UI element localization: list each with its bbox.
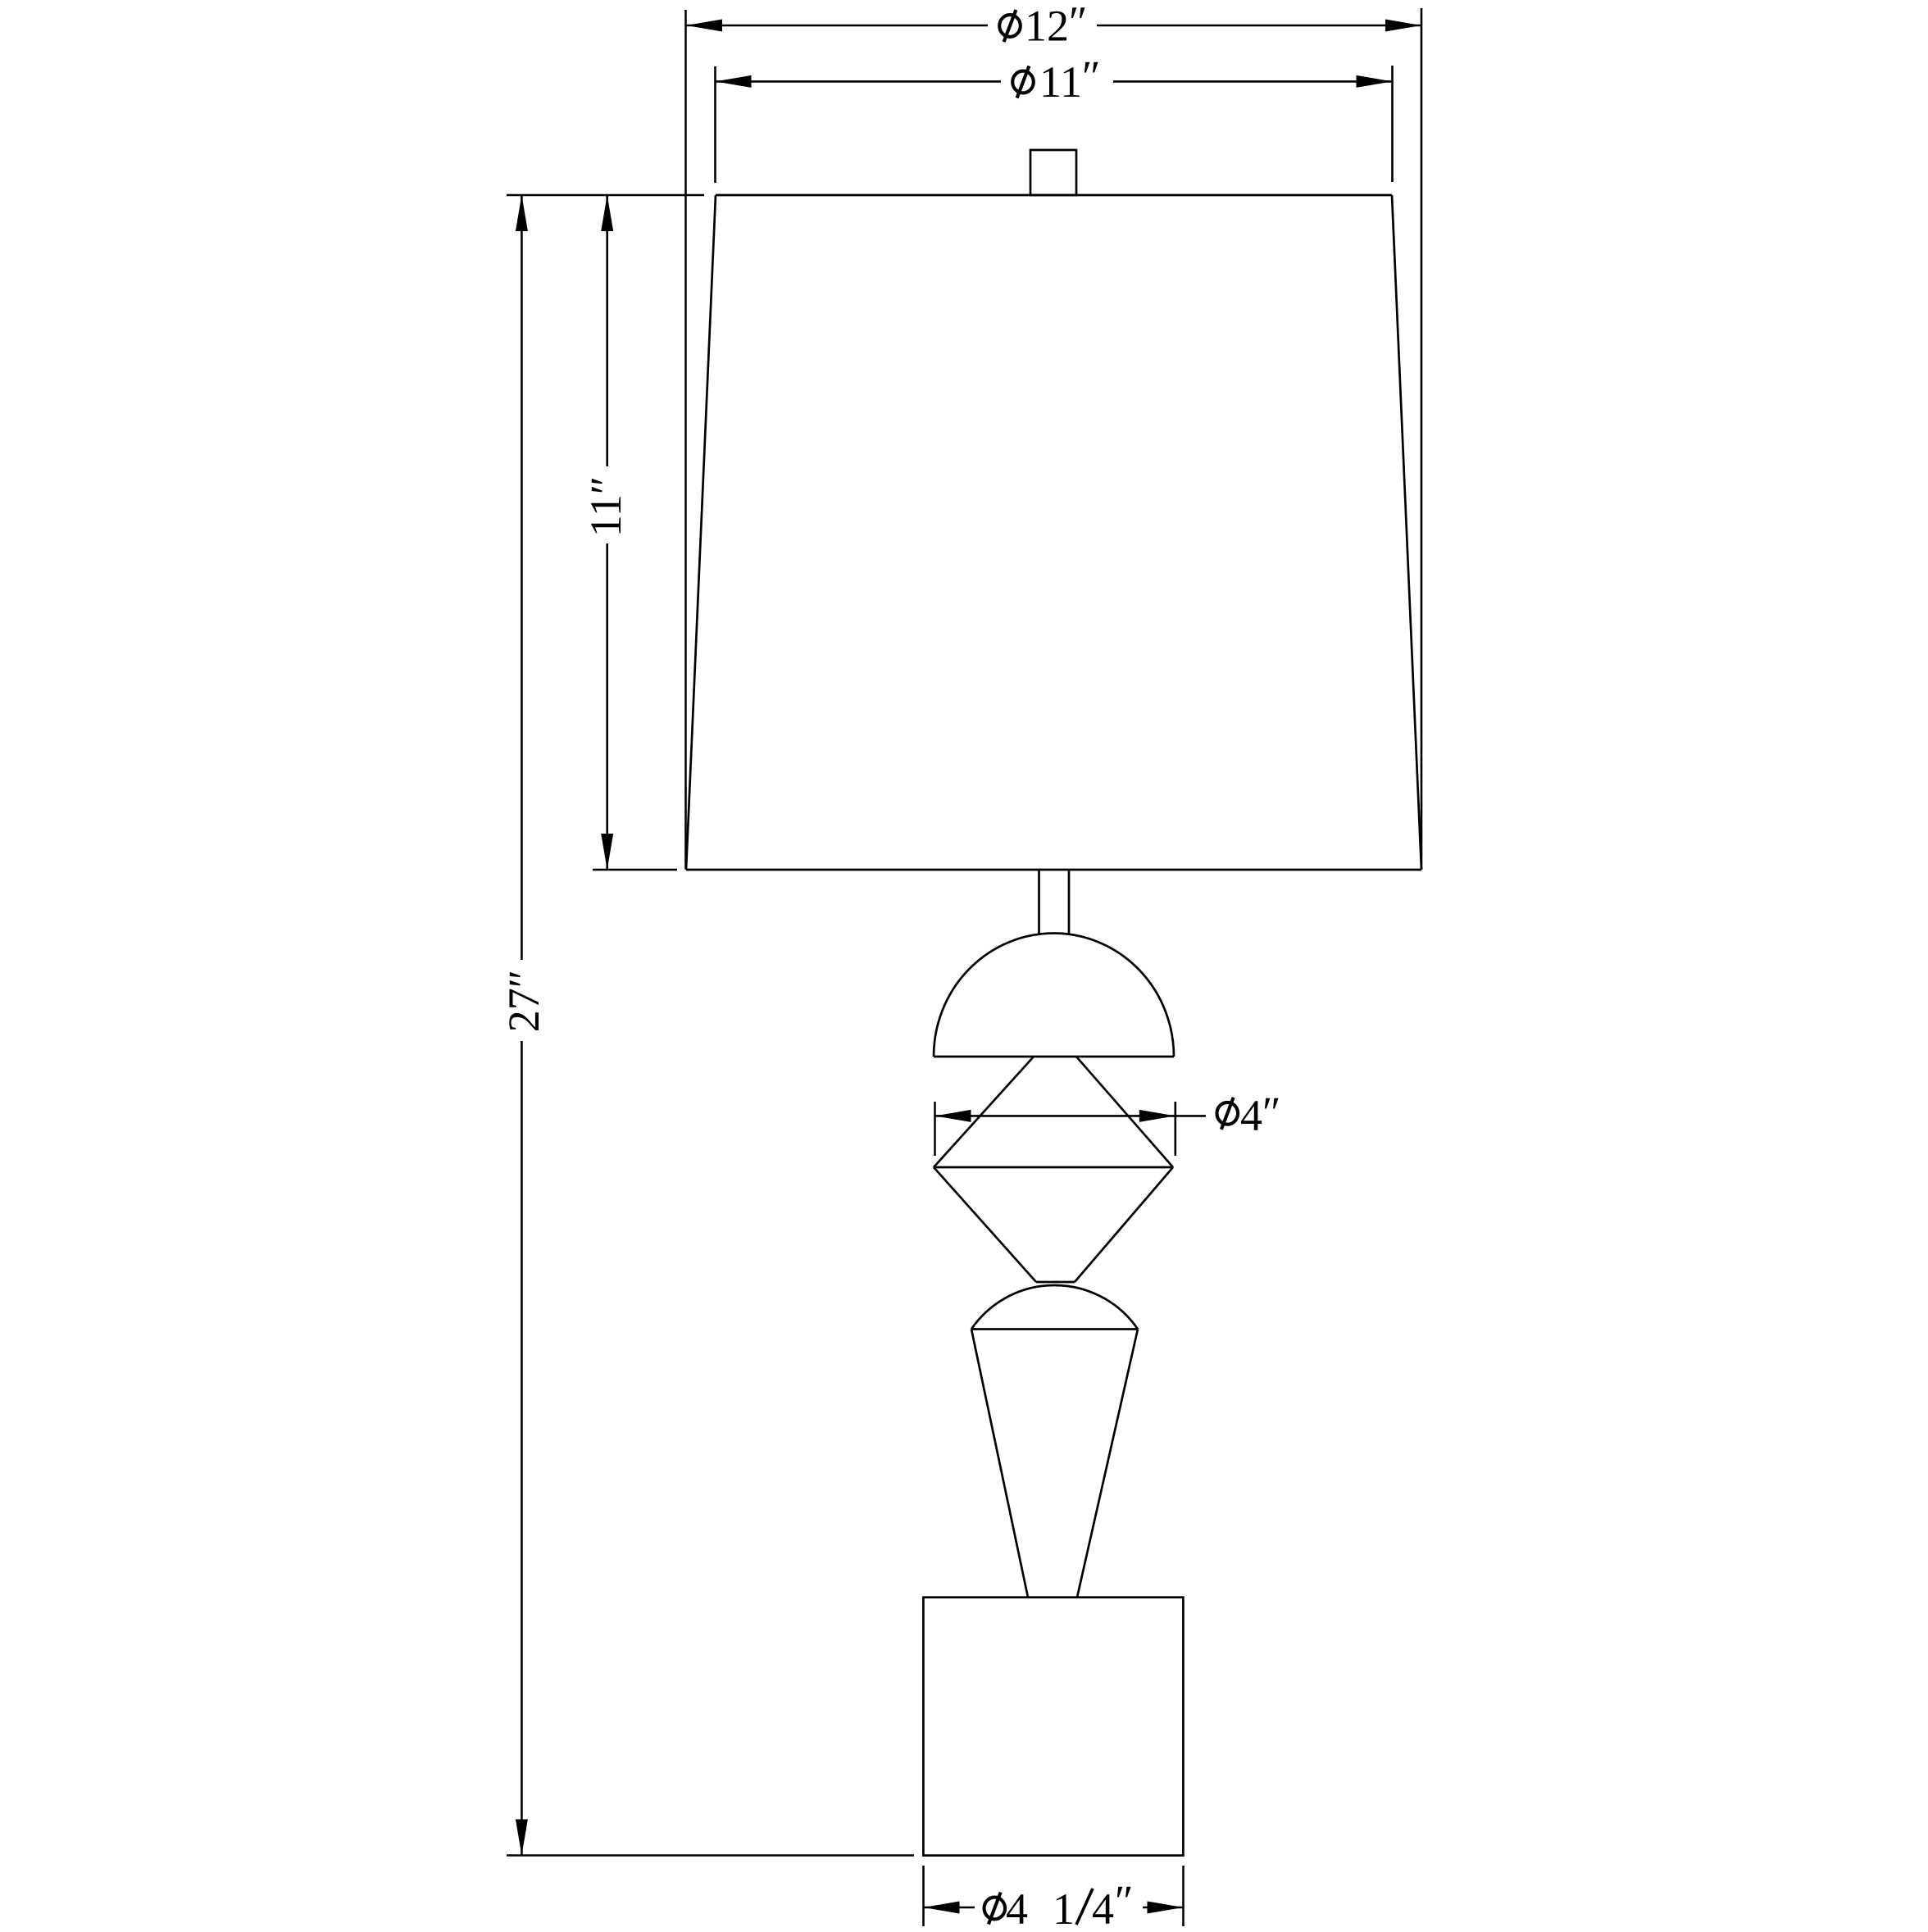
svg-text:12″: 12″ bbox=[1025, 0, 1088, 51]
svg-text:″: ″ bbox=[1115, 1876, 1134, 1925]
svg-text:4: 4 bbox=[1092, 1884, 1114, 1928]
svg-text:4″: 4″ bbox=[1240, 1088, 1281, 1140]
svg-text:4: 4 bbox=[1006, 1884, 1028, 1928]
svg-text:27″: 27″ bbox=[499, 970, 548, 1033]
svg-text:11″: 11″ bbox=[1039, 52, 1101, 107]
svg-text:11″: 11″ bbox=[581, 476, 630, 538]
svg-text:1: 1 bbox=[1053, 1884, 1075, 1928]
